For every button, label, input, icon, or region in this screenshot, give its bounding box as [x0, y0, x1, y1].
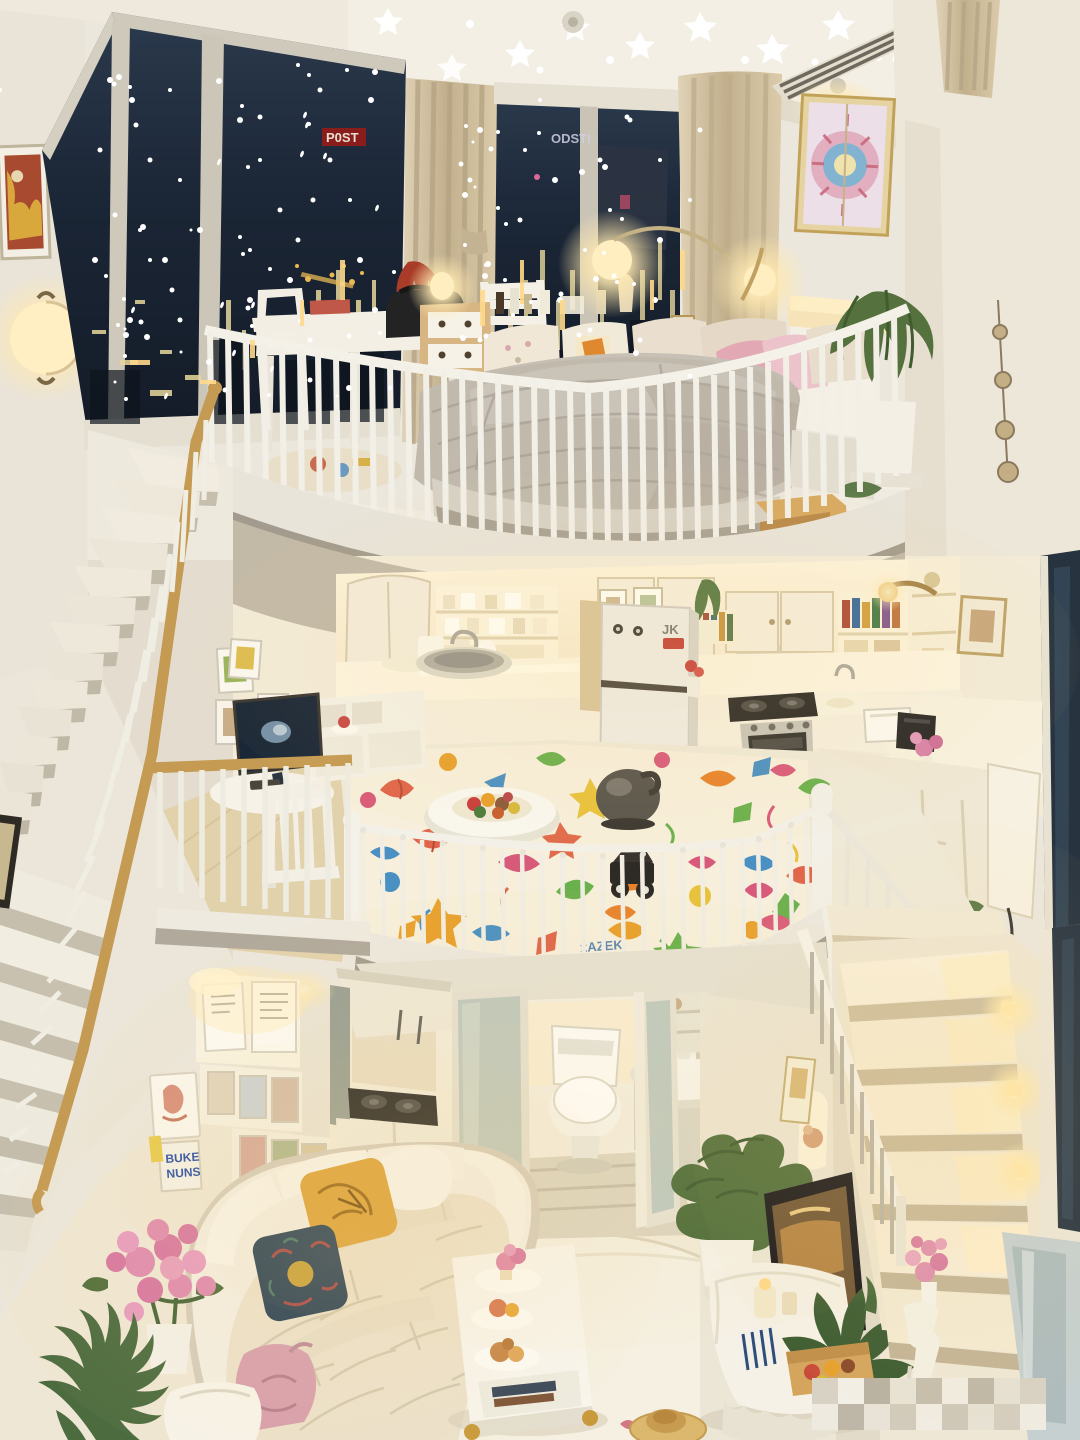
svg-text:P0ST: P0ST [326, 130, 359, 145]
svg-text:ODSTI: ODSTI [551, 131, 591, 146]
